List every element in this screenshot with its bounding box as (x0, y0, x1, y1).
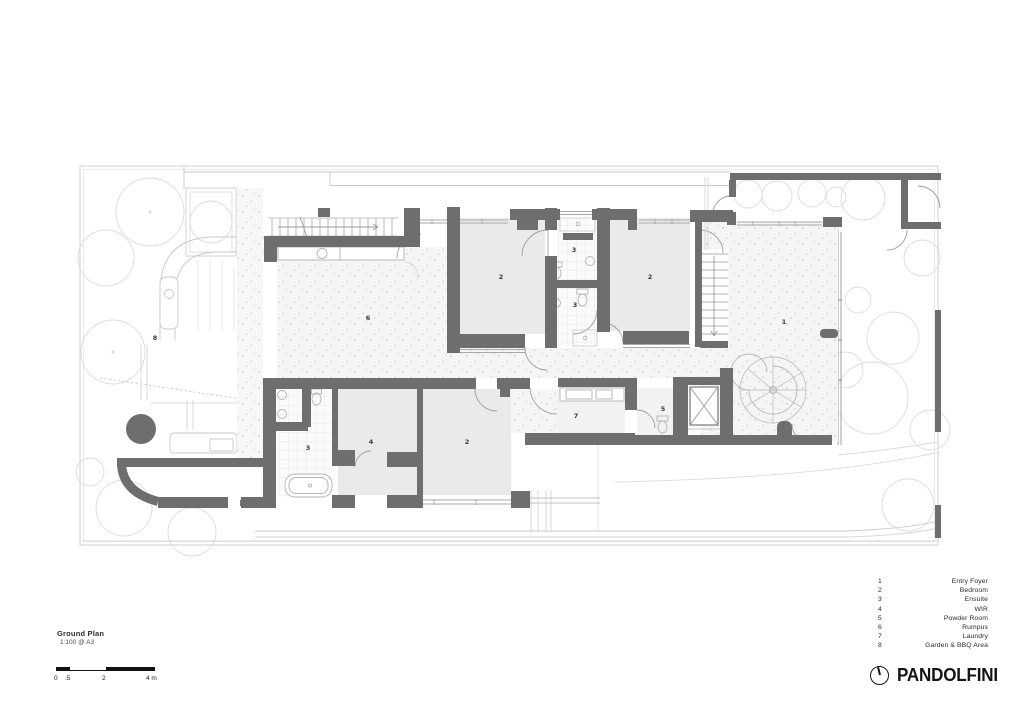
legend-label: Powder Room (892, 614, 988, 623)
legend-row: 1Entry Foyer (878, 577, 988, 586)
legend-number: 3 (878, 595, 892, 604)
legend-label: WIR (892, 605, 988, 614)
legend-row: 8Garden & BBQ Area (878, 641, 988, 650)
room-legend: 1Entry Foyer2Bedroom3Ensuite4WIR5Powder … (878, 577, 988, 651)
legend-row: 3Ensuite (878, 595, 988, 604)
floor-plan-svg: 122233345678 (0, 0, 1024, 724)
room-number-label: 2 (648, 273, 653, 281)
legend-number: 6 (878, 623, 892, 632)
dial-circle-icon (870, 666, 889, 685)
room-number-label: 3 (572, 246, 577, 254)
legend-number: 2 (878, 586, 892, 595)
room-number-label: 3 (306, 444, 311, 452)
scale-label: 4 m (146, 675, 157, 682)
room-number-label: 3 (573, 301, 578, 309)
legend-number: 4 (878, 605, 892, 614)
legend-label: Garden & BBQ Area (892, 641, 988, 650)
legend-number: 8 (878, 641, 892, 650)
scale-bar-labels: 0.524 m (54, 675, 174, 685)
room-number-label: 4 (369, 438, 374, 446)
legend-row: 4WIR (878, 605, 988, 614)
legend-row: 2Bedroom (878, 586, 988, 595)
legend-row: 5Powder Room (878, 614, 988, 623)
scale-label: 2 (102, 675, 106, 682)
room-number-label: 7 (574, 412, 579, 420)
legend-label: Entry Foyer (892, 577, 988, 586)
drawing-sheet: 122233345678 Ground Plan 1:100 @ A3 0.52… (0, 0, 1024, 724)
curved-garden-wall (122, 462, 159, 502)
legend-row: 7Laundry (878, 632, 988, 641)
legend-label: Ensuite (892, 595, 988, 604)
laundry-fixtures (560, 388, 624, 401)
drawing-title: Ground Plan (57, 629, 104, 638)
legend-label: Bedroom (892, 586, 988, 595)
scale-bar-graphic (56, 667, 155, 671)
legend-label: Rumpus (892, 623, 988, 632)
legend-row: 6Rumpus (878, 623, 988, 632)
brand-name: PANDOLFINI (897, 664, 998, 686)
upper-stair (268, 217, 398, 237)
scale-bar: 0.524 m (54, 664, 174, 686)
legend-number: 5 (878, 614, 892, 623)
legend-number: 1 (878, 577, 892, 586)
room-number-label: 8 (153, 334, 158, 342)
room-number-label: 6 (366, 314, 371, 322)
room-number-label: 5 (661, 405, 666, 413)
stair-column (318, 208, 330, 217)
title-block: Ground Plan 1:100 @ A3 (57, 629, 104, 648)
room-number-label: 2 (465, 438, 470, 446)
room-number-label: 2 (499, 273, 504, 281)
scale-label: 0 (54, 675, 58, 682)
elevator (686, 383, 722, 429)
drawing-scale-note: 1:100 @ A3 (57, 639, 104, 647)
room-number-label: 1 (782, 318, 787, 326)
brand-logo: PANDOLFINI (870, 664, 1007, 686)
legend-number: 7 (878, 632, 892, 641)
garden-tree-solid (126, 414, 156, 444)
scale-label: .5 (65, 675, 70, 682)
legend-label: Laundry (892, 632, 988, 641)
floor-finishes (237, 188, 838, 497)
